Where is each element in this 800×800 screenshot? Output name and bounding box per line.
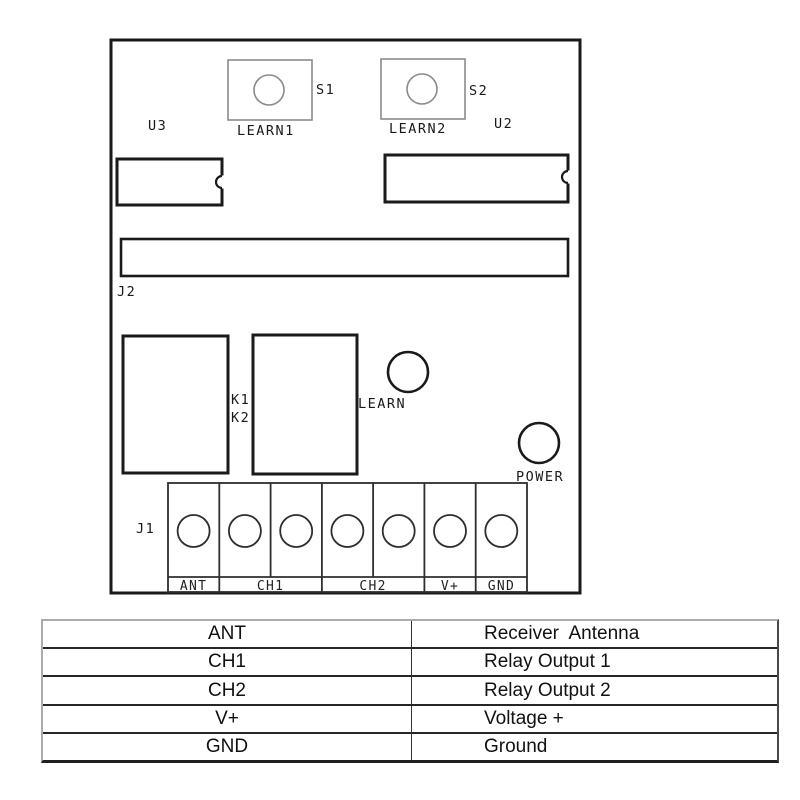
description-cell: Relay Output 1 xyxy=(411,649,777,675)
ic-u2-body xyxy=(385,155,568,202)
terminal-dividers xyxy=(168,483,527,592)
terminal-screws xyxy=(178,515,518,547)
receiver-board-diagram-page: S1 LEARN1 S2 LEARN2 U3 U2 J2 K1 K2 LEARN… xyxy=(0,0,800,800)
board-diagram: S1 LEARN1 S2 LEARN2 U3 U2 J2 K1 K2 LEARN… xyxy=(0,0,800,618)
description-cell: Voltage + xyxy=(411,706,777,732)
terminal-screw-4 xyxy=(331,515,363,547)
table-row-ch2: CH2 Relay Output 2 xyxy=(43,675,777,703)
label-j2: J2 xyxy=(117,284,136,300)
pin-cell: ANT xyxy=(43,621,411,647)
label-s2: S2 xyxy=(469,83,488,99)
description-cell: Relay Output 2 xyxy=(411,677,777,703)
label-j1: J1 xyxy=(136,521,155,537)
pushbutton-s1-body xyxy=(228,60,312,120)
label-u3: U3 xyxy=(148,118,167,134)
table-row-ch1: CH1 Relay Output 1 xyxy=(43,647,777,675)
label-u2: U2 xyxy=(494,116,513,132)
power-indicator xyxy=(519,423,559,463)
label-k1: K1 xyxy=(231,392,250,408)
label-learn: LEARN xyxy=(358,396,406,412)
pushbutton-s2-body xyxy=(381,59,465,119)
label-s1: S1 xyxy=(316,82,335,98)
label-learn1: LEARN1 xyxy=(237,123,295,139)
label-learn2: LEARN2 xyxy=(389,121,447,137)
terminal-block-j1 xyxy=(168,483,527,592)
terminal-screw-1 xyxy=(178,515,210,547)
pin-description-table: ANT Receiver Antenna CH1 Relay Output 1 … xyxy=(41,619,779,763)
pin-cell: V+ xyxy=(43,706,411,732)
relay-k1-body xyxy=(123,336,228,473)
terminal-label-ant: ANT xyxy=(180,579,207,594)
terminal-screw-3 xyxy=(280,515,312,547)
terminal-screw-5 xyxy=(383,515,415,547)
pushbutton-s1-actuator xyxy=(254,75,284,105)
relay-k2-body xyxy=(253,335,357,474)
terminal-label-ch1: CH1 xyxy=(257,579,284,594)
table-row-vplus: V+ Voltage + xyxy=(43,704,777,732)
table-row-ant: ANT Receiver Antenna xyxy=(43,621,777,647)
pin-cell: CH1 xyxy=(43,649,411,675)
connector-j2-body xyxy=(121,239,568,276)
description-cell: Ground xyxy=(411,734,777,760)
ic-u3-body xyxy=(117,159,222,205)
pin-cell: GND xyxy=(43,734,411,760)
terminal-label-vplus: V+ xyxy=(441,579,459,594)
terminal-screw-7 xyxy=(485,515,517,547)
terminal-label-gnd: GND xyxy=(488,579,515,594)
pin-cell: CH2 xyxy=(43,677,411,703)
table-row-gnd: GND Ground xyxy=(43,732,777,760)
terminal-label-ch2: CH2 xyxy=(359,579,386,594)
terminal-screw-6 xyxy=(434,515,466,547)
terminal-screw-2 xyxy=(229,515,261,547)
description-cell: Receiver Antenna xyxy=(411,621,777,647)
pushbutton-s2-actuator xyxy=(407,74,437,104)
label-k2: K2 xyxy=(231,410,250,426)
learn-indicator xyxy=(388,352,428,392)
